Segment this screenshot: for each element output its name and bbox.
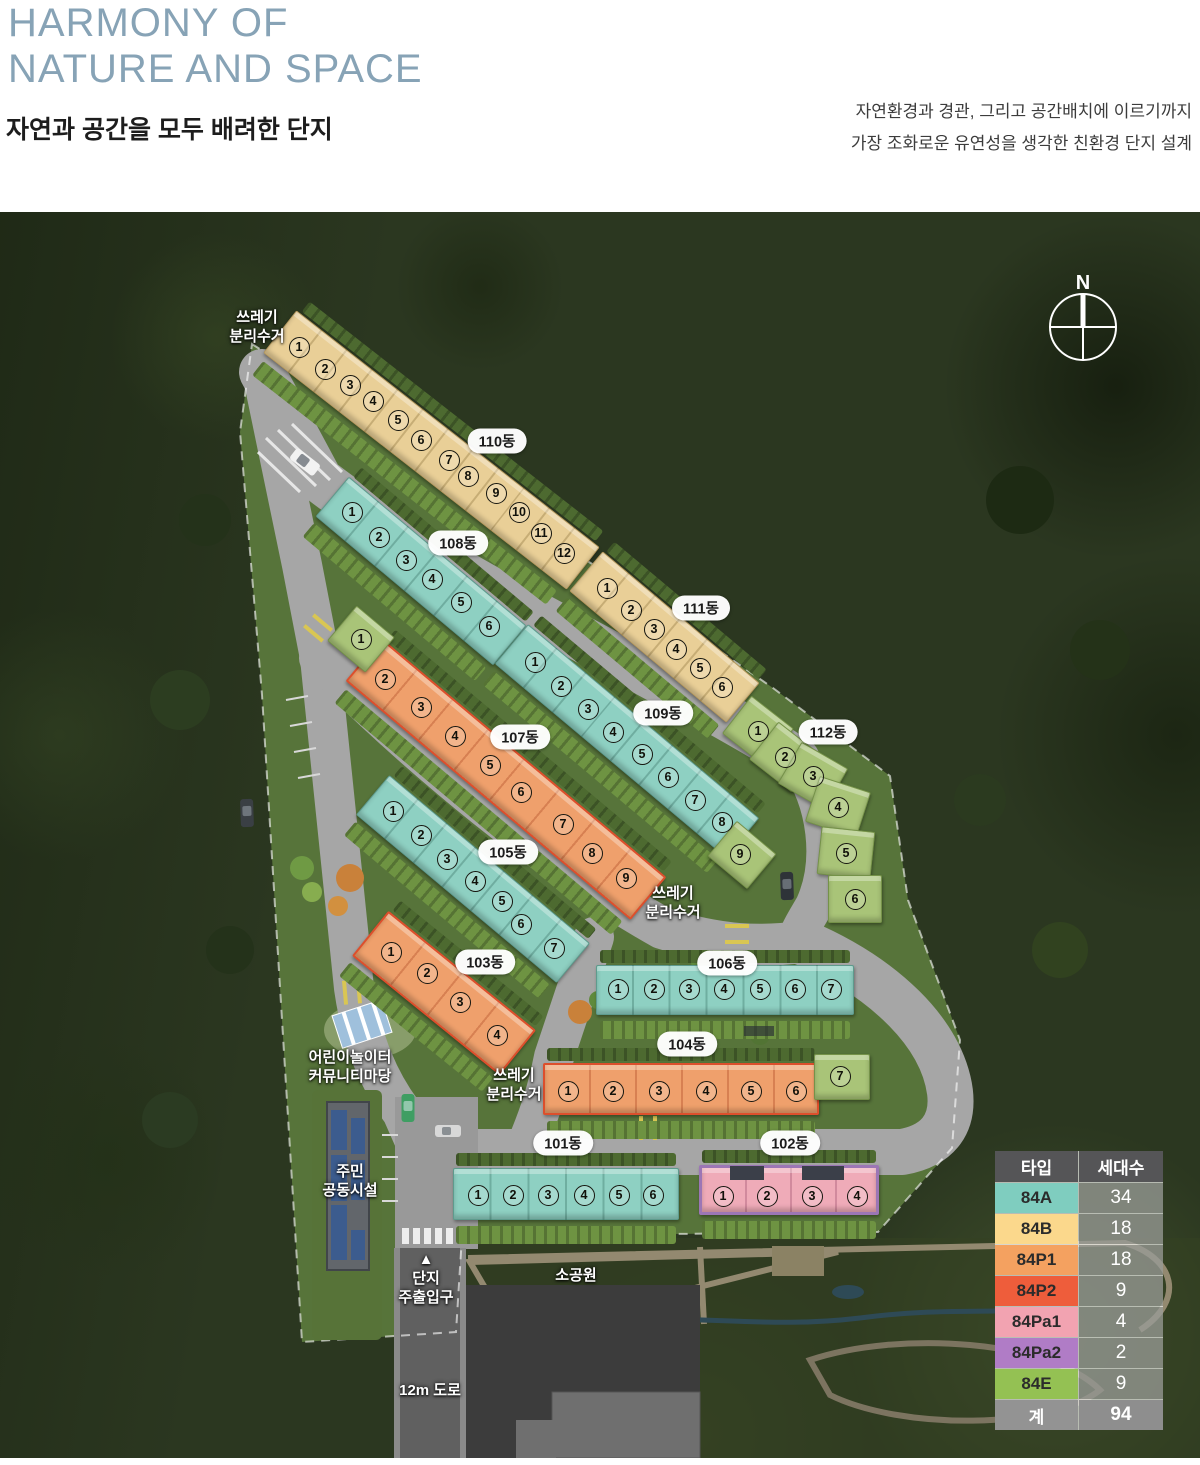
site-plan-map: N 123456789101112110동123456108동123456111… [0,212,1200,1458]
legend-type-84P2: 84P2 [995,1276,1078,1306]
legend-type-84A: 84A [995,1183,1078,1213]
legend-type-84B: 84B [995,1214,1078,1244]
legend-total-count: 94 [1079,1400,1163,1430]
hedge-102 [702,1150,877,1163]
legend-count-84P1: 18 [1079,1245,1163,1275]
page-title: HARMONY OF NATURE AND SPACE [8,0,423,92]
building-112 [828,875,882,923]
building-101 [453,1168,679,1220]
hedge-104 [547,1048,815,1061]
hedge-104 [547,1121,815,1139]
legend-type-84Pa2: 84Pa2 [995,1338,1078,1368]
hedge-101 [456,1153,675,1166]
hedge-102 [702,1221,877,1239]
legend-type-84E: 84E [995,1369,1078,1399]
building-102 [699,1165,879,1215]
legend-count-84Pa2: 2 [1079,1338,1163,1368]
legend-count-84P2: 9 [1079,1276,1163,1306]
legend-count-84B: 18 [1079,1214,1163,1244]
legend-header-type: 타입 [995,1151,1078,1182]
legend-type-84Pa1: 84Pa1 [995,1307,1078,1337]
hedge-106 [600,1021,850,1039]
legend-header-count: 세대수 [1079,1151,1163,1182]
legend-count-84E: 9 [1079,1369,1163,1399]
legend-count-84Pa1: 4 [1079,1307,1163,1337]
legend-total-label: 계 [995,1400,1078,1430]
building-112 [817,826,876,879]
page: HARMONY OF NATURE AND SPACE 자연과 공간을 모두 배… [0,0,1200,1465]
building-106 [596,965,854,1015]
building-104-annex [814,1054,870,1100]
legend-type-84P1: 84P1 [995,1245,1078,1275]
hedge-106 [600,950,850,963]
legend-count-84A: 34 [1079,1183,1163,1213]
page-subtitle: 자연과 공간을 모두 배려한 단지 [6,110,333,146]
unit-type-legend: 타입세대수84A3484B1884P11884P2984Pa1484Pa2284… [995,1151,1163,1430]
building-104 [543,1063,819,1115]
page-description: 자연환경과 경관, 그리고 공간배치에 이르기까지 가장 조화로운 유연성을 생… [851,96,1192,160]
hedge-101 [456,1226,675,1244]
